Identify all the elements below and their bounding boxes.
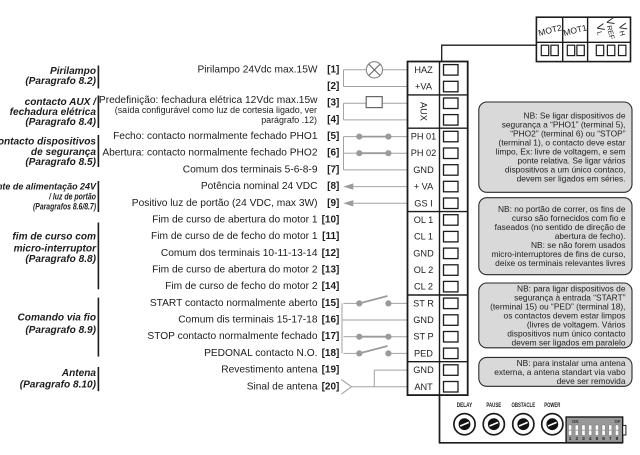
svg-text:6: 6 (602, 436, 605, 442)
svg-text:[8]: [8] (327, 181, 339, 192)
svg-text:[3]: [3] (327, 98, 339, 109)
svg-text:/ luz de portão: / luz de portão (48, 192, 96, 202)
svg-text:+ VA: + VA (414, 182, 434, 192)
svg-text:STOP contacto normalmente fech: STOP contacto normalmente fechado (147, 331, 317, 342)
svg-text:[7]: [7] (327, 164, 339, 175)
svg-text:(Paragrafos 8.6/8.7): (Paragrafos 8.6/8.7) (33, 202, 96, 212)
svg-text:[15]: [15] (322, 298, 340, 309)
svg-text:Fonte de alimentação 24V: Fonte de alimentação 24V (0, 182, 97, 192)
svg-text:PEDONAL contacto N.O.: PEDONAL contacto N.O. (204, 348, 317, 359)
svg-text:DELAY: DELAY (457, 402, 473, 409)
svg-text:[16]: [16] (322, 315, 340, 326)
svg-text:fim de curso com: fim de curso com (12, 232, 96, 243)
svg-text:GND: GND (413, 365, 434, 375)
svg-text:[18]: [18] (322, 348, 340, 359)
svg-text:[20]: [20] (322, 381, 340, 392)
svg-text:[10]: [10] (322, 215, 340, 226)
svg-text:Fim de curso de abertura do mo: Fim de curso de abertura do motor 2 (152, 265, 318, 276)
svg-text:devem ser ligados em paralelo: devem ser ligados em paralelo (511, 337, 625, 347)
svg-text:PH 02: PH 02 (411, 148, 437, 158)
svg-text:+VA: +VA (415, 82, 433, 92)
svg-text:ANT: ANT (414, 382, 433, 392)
svg-text:HAZ: HAZ (414, 65, 433, 75)
svg-text:3: 3 (582, 436, 585, 442)
svg-text:GND: GND (413, 248, 434, 258)
svg-text:Comum dos terminais 5-6-8-9: Comum dos terminais 5-6-8-9 (183, 164, 318, 175)
svg-text:[17]: [17] (322, 331, 340, 342)
svg-text:Positivo luz de portão (24 VDC: Positivo luz de portão (24 VDC, max 3W) (132, 198, 318, 209)
svg-text:GS I: GS I (414, 198, 432, 208)
svg-text:Comum dis terminais 15-17-18: Comum dis terminais 15-17-18 (178, 315, 318, 326)
svg-text:OL 2: OL 2 (414, 265, 434, 275)
svg-text:(Paragrafo 8.2): (Paragrafo 8.2) (25, 76, 96, 87)
svg-text:GND: GND (413, 165, 434, 175)
svg-text:START contacto normalmente abe: START contacto normalmente aberto (150, 298, 318, 309)
svg-text:AUX: AUX (419, 102, 429, 121)
svg-text:CL 1: CL 1 (414, 232, 433, 242)
svg-text:Abertura: contacto normalmente: Abertura: contacto normalmente fechado P… (102, 148, 318, 159)
svg-text:ON: ON (572, 419, 578, 424)
svg-text:[5]: [5] (327, 131, 339, 142)
svg-text:Fecho: contacto normalmente fe: Fecho: contacto normalmente fechado PHO1 (113, 131, 318, 142)
svg-text:(Paragrafo 8.9): (Paragrafo 8.9) (25, 325, 96, 336)
svg-text:[14]: [14] (322, 281, 340, 292)
svg-text:Antena: Antena (61, 368, 97, 379)
svg-text:contacto dispositivos: contacto dispositivos (0, 136, 96, 147)
svg-text:(Paragrafo 8.4): (Paragrafo 8.4) (25, 117, 96, 128)
svg-text:[2]: [2] (327, 81, 339, 92)
svg-text:(Paragrafo 8.8): (Paragrafo 8.8) (25, 254, 96, 265)
svg-text:parágrafo .12): parágrafo .12) (261, 115, 317, 125)
svg-text:POWER: POWER (544, 402, 560, 409)
svg-text:Sinal de antena: Sinal de antena (247, 381, 318, 392)
svg-text:[9]: [9] (327, 198, 339, 209)
svg-text:ST R: ST R (413, 298, 434, 308)
svg-text:(saída configurável como luz d: (saída configurável como luz de cortesia… (115, 105, 317, 115)
svg-text:5: 5 (596, 436, 599, 442)
svg-text:OF: OF (615, 419, 621, 424)
svg-text:PH 01: PH 01 (411, 132, 437, 142)
svg-text:Revestimento antena: Revestimento antena (221, 365, 318, 376)
svg-text:CL 2: CL 2 (414, 282, 433, 292)
svg-text:Fim de curso de fecho do motor: Fim de curso de fecho do motor 2 (165, 281, 318, 292)
svg-text:[13]: [13] (322, 265, 340, 276)
svg-text:OL 1: OL 1 (414, 215, 434, 225)
svg-text:Comum dos terminais 10-11-13-1: Comum dos terminais 10-11-13-14 (161, 248, 318, 259)
svg-text:devem ser ligados em séries.: devem ser ligados em séries. (517, 174, 626, 184)
svg-text:ST P: ST P (413, 332, 433, 342)
svg-text:PED: PED (414, 348, 433, 358)
svg-text:[6]: [6] (327, 148, 339, 159)
svg-text:deve ser removida: deve ser removida (557, 376, 626, 386)
svg-text:(Paragrafo 8.10): (Paragrafo 8.10) (20, 380, 97, 391)
svg-text:7: 7 (609, 436, 612, 442)
svg-text:Pirilampo 24Vdc max.15W: Pirilampo 24Vdc max.15W (197, 64, 317, 75)
svg-text:Fim de curso de de fecho do mo: Fim de curso de de fecho do motor 1 (151, 231, 318, 242)
svg-text:Potência nominal 24 VDC: Potência nominal 24 VDC (201, 181, 318, 192)
svg-text:deixe os terminais relevantes: deixe os terminais relevantes livres (495, 258, 625, 268)
svg-text:Fim de curso de abertura do mo: Fim de curso de abertura do motor 1 (152, 215, 318, 226)
svg-text:(Paragrafo 8.5): (Paragrafo 8.5) (25, 157, 96, 168)
svg-text:micro-interruptor: micro-interruptor (14, 243, 98, 254)
svg-text:[11]: [11] (322, 231, 339, 242)
svg-text:[4]: [4] (327, 114, 339, 125)
svg-text:[1]: [1] (327, 64, 339, 75)
svg-text:8: 8 (616, 436, 619, 442)
svg-text:OBSTACLE: OBSTACLE (512, 402, 536, 409)
svg-text:[12]: [12] (322, 248, 340, 259)
svg-text:Comando via fio: Comando via fio (17, 313, 96, 324)
svg-text:1: 1 (569, 436, 572, 442)
svg-text:GND: GND (413, 315, 434, 325)
svg-text:PAUSE: PAUSE (486, 402, 501, 409)
svg-text:4: 4 (589, 436, 592, 442)
svg-text:[19]: [19] (322, 365, 340, 376)
svg-text:2: 2 (575, 436, 578, 442)
